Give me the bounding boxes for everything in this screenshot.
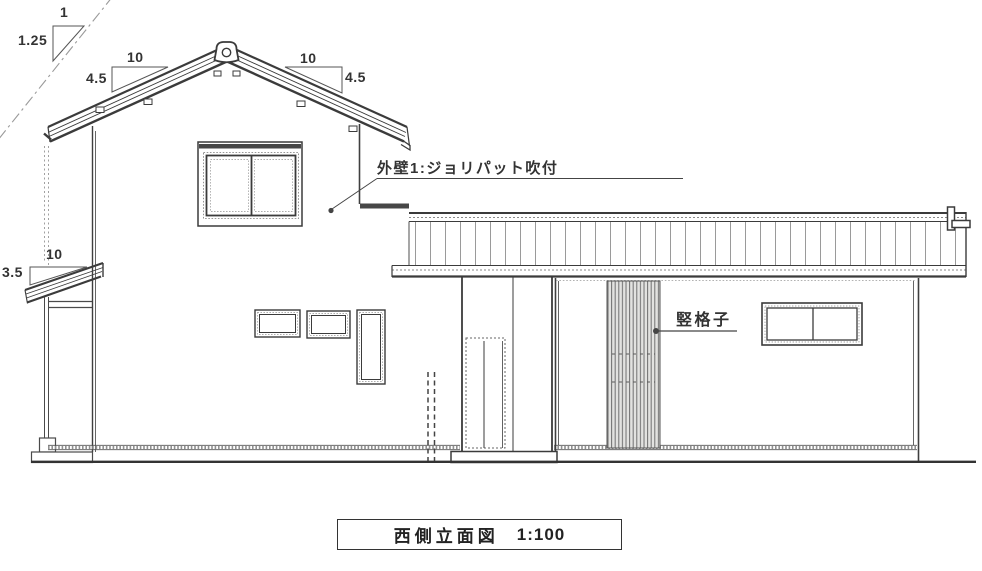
setback-rise-label: 1.25: [18, 32, 47, 48]
lattice-annotation: 竪格子: [676, 306, 732, 330]
elevation-linework: [0, 0, 982, 571]
window-wing: [762, 303, 862, 345]
drawing-title: 西側立面図: [394, 522, 499, 547]
pent-run-label: 10: [46, 246, 63, 262]
ridge-cap: [215, 42, 239, 62]
roof-left-rise-label: 4.5: [86, 70, 107, 86]
roof-left-run-label: 10: [127, 49, 144, 65]
left-bay-structure: [32, 146, 93, 463]
drawing-scale: 1:100: [517, 525, 565, 545]
lattice-screen: [607, 281, 660, 448]
window-2f: [198, 142, 302, 226]
wing-roof: [360, 204, 966, 278]
roof-right-rise-label: 4.5: [345, 69, 366, 85]
entrance-porch: [451, 278, 557, 463]
elevation-drawing-sheet: 1 1.25 10 4.5 10 4.5 10 3.5 外壁1:ジョリパット吹付…: [0, 0, 982, 571]
windows-1f: [255, 310, 385, 384]
wall-finish-annotation: 外壁1:ジョリパット吹付: [377, 157, 558, 178]
roof-right-run-label: 10: [300, 50, 317, 66]
pent-rise-label: 3.5: [2, 264, 23, 280]
setback-run-label: 1: [60, 4, 68, 20]
title-block: 西側立面図 1:100: [337, 519, 622, 550]
